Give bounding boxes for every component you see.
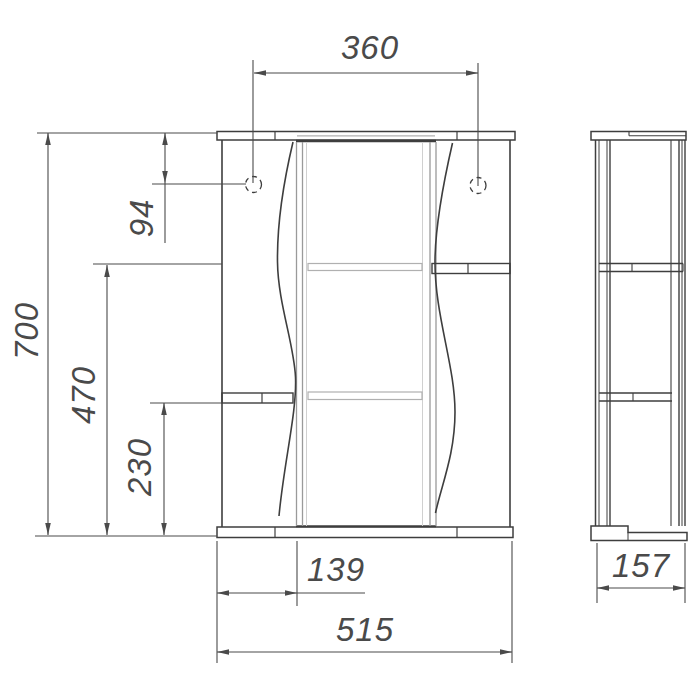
- dimension-139: 139: [217, 551, 365, 596]
- dim-label-700: 700: [8, 302, 45, 360]
- arrowhead-icon: [45, 133, 51, 145]
- dimension-157: 157: [597, 547, 685, 591]
- arrowhead-icon: [162, 171, 168, 183]
- arrowhead-icon: [500, 649, 512, 655]
- arrowhead-icon: [104, 523, 110, 535]
- arrowhead-icon: [217, 649, 229, 655]
- dim-label-360: 360: [341, 29, 399, 66]
- door-wave-left-edge: [277, 142, 295, 516]
- drawing-canvas: 360 700 470 230 94: [0, 0, 700, 700]
- front-bottom-cap: [217, 527, 513, 538]
- arrowhead-icon: [161, 523, 167, 535]
- dim-label-94: 94: [123, 199, 160, 238]
- dimension-515: 515: [217, 611, 512, 655]
- dim-label-470: 470: [65, 366, 102, 424]
- arrowhead-icon: [45, 523, 51, 535]
- side-bottom-cap: [591, 526, 687, 541]
- dim-label-139: 139: [307, 551, 365, 588]
- cabinet-dimension-drawing: 360 700 470 230 94: [0, 0, 700, 700]
- arrowhead-icon: [162, 133, 168, 145]
- dim-label-157: 157: [612, 547, 671, 584]
- arrowhead-icon: [597, 585, 609, 591]
- interior-shelf-upper: [308, 264, 422, 271]
- dimensions: 360 700 470 230 94: [8, 29, 686, 663]
- arrowhead-icon: [104, 265, 110, 277]
- side-view: [591, 132, 687, 541]
- arrowhead-icon: [673, 585, 685, 591]
- dimension-94: 94: [123, 133, 168, 243]
- left-open-shelf: [222, 393, 293, 403]
- arrowhead-icon: [285, 590, 297, 596]
- dim-label-515: 515: [336, 611, 394, 648]
- dim-label-230: 230: [121, 438, 158, 497]
- dimension-230: 230: [121, 403, 167, 535]
- dimension-470: 470: [65, 265, 110, 535]
- dimension-700: 700: [8, 133, 51, 535]
- arrowhead-icon: [254, 70, 266, 76]
- arrowhead-icon: [217, 590, 229, 596]
- arrowhead-icon: [466, 70, 478, 76]
- front-view: [217, 132, 515, 538]
- door-wave-right-edge: [435, 143, 455, 513]
- interior-shelf-lower: [308, 392, 422, 400]
- arrowhead-icon: [161, 403, 167, 415]
- right-open-shelf: [432, 264, 510, 274]
- dimension-360: 360: [254, 29, 478, 76]
